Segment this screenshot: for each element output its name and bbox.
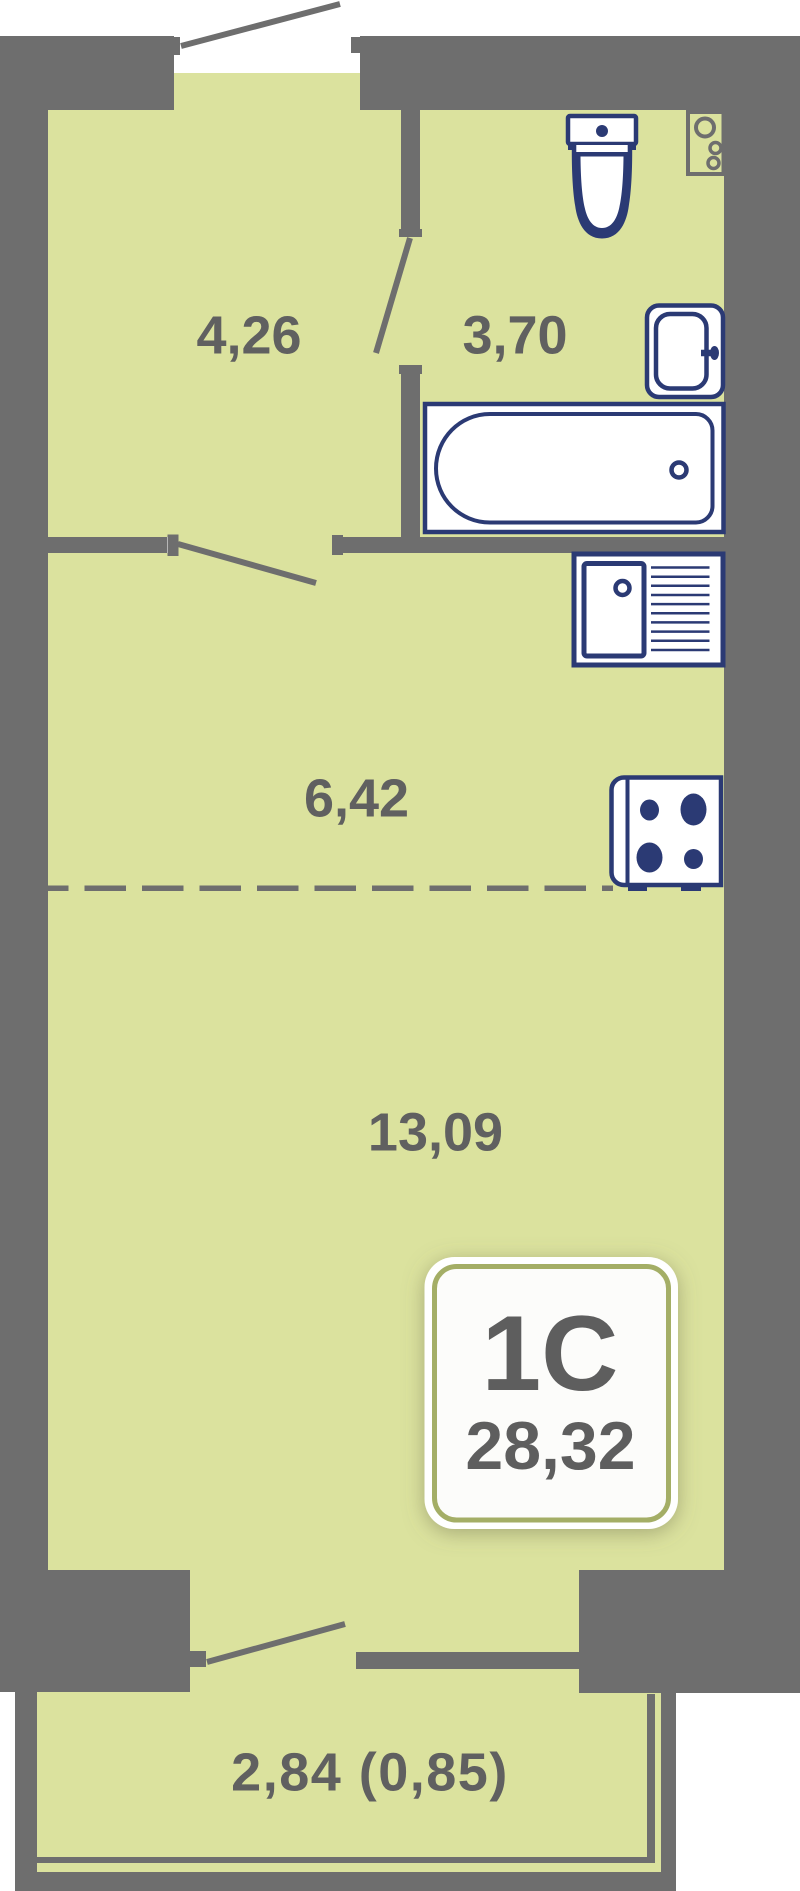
svg-text:13,09: 13,09 (368, 1103, 503, 1163)
svg-text:28,32: 28,32 (465, 1408, 635, 1484)
svg-text:2,84 (0,85): 2,84 (0,85) (231, 1742, 509, 1802)
svg-text:4,26: 4,26 (196, 306, 301, 366)
svg-text:1С: 1С (482, 1293, 619, 1413)
svg-text:6,42: 6,42 (304, 769, 409, 829)
svg-text:3,70: 3,70 (462, 306, 567, 366)
